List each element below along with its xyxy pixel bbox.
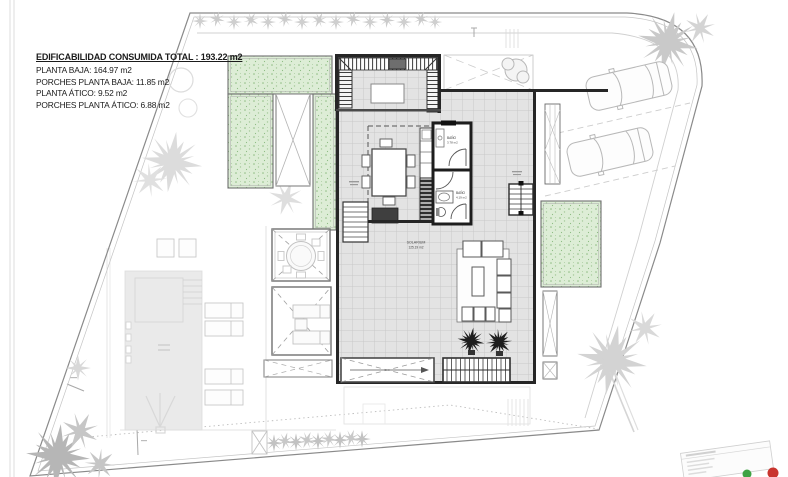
courtyard-low: [264, 360, 332, 377]
pergola-slats: [339, 58, 437, 70]
sofa-set: [457, 241, 511, 322]
legend-total: EDIFICABILIDAD CONSUMIDA TOTAL : 193.22 …: [36, 52, 242, 62]
palm-tree-icon: [226, 14, 242, 30]
wall: [335, 54, 441, 58]
planter: [543, 291, 557, 356]
palm-tree-icon: [362, 14, 378, 30]
palm-tree-icon: [65, 355, 91, 381]
palm-trunk: [610, 372, 634, 432]
entry-stair: [343, 202, 368, 242]
legend-line-planta-atico: PLANTA ÁTICO: 9.52 m2: [36, 88, 242, 100]
wall: [336, 111, 339, 384]
palm-tree-icon: [192, 13, 208, 29]
room-label: SOLARIUM: [407, 241, 426, 245]
wall: [368, 220, 433, 223]
wall: [533, 89, 536, 384]
dining-table: [372, 149, 406, 196]
coffee-table: [472, 267, 484, 296]
planter: [545, 104, 560, 184]
wall: [335, 54, 339, 111]
wall: [336, 109, 441, 112]
palm-tree-icon: [328, 14, 344, 30]
palm-tree-icon: [378, 11, 395, 28]
palm-tree-icon: [240, 9, 262, 31]
window: [441, 121, 456, 126]
bathroom-block: BAÑO 3.78 m2 BAÑO 4.19 m2: [433, 121, 471, 225]
courtyard-dining: [272, 229, 330, 281]
room-area-label: 4.19 m2: [456, 196, 467, 200]
deck-ramp: [341, 358, 434, 382]
palm-tree-icon: [343, 9, 363, 29]
room-area-label: 3.78 m2: [447, 141, 458, 145]
rooftop-unit: [389, 59, 406, 69]
wall: [438, 54, 442, 113]
room-label: BAÑO: [456, 190, 466, 195]
trellis-post: [252, 431, 267, 454]
stair-west: [339, 70, 352, 108]
palm-row-top: [192, 9, 442, 31]
palm-tree-icon: [621, 304, 670, 353]
garden-stair: [509, 181, 533, 216]
palm-tree-icon: [260, 14, 276, 30]
room-label: BAÑO: [447, 135, 457, 140]
grill-strip: [420, 178, 433, 221]
car-icon: [583, 57, 674, 116]
buildability-legend: EDIFICABILIDAD CONSUMIDA TOTAL : 193.22 …: [36, 52, 242, 111]
palm-tree-icon: [411, 9, 432, 30]
swimming-pool: [125, 271, 202, 433]
wall: [440, 89, 608, 92]
main-stair: [443, 358, 510, 382]
garden-bed: [541, 201, 601, 287]
planter: [543, 362, 557, 379]
legend-line-porches-planta-baja: PORCHES PLANTA BAJA: 11.85 m2: [36, 77, 242, 89]
car-icon: [564, 123, 655, 182]
lightwell: [276, 94, 310, 186]
garden-bed: [313, 94, 336, 230]
legend-line-planta-baja: PLANTA BAJA: 164.97 m2: [36, 65, 242, 77]
hedge-row-bottom: [265, 427, 371, 452]
legend-line-porches-planta-atico: PORCHES PLANTA ÁTICO: 6.88 m2: [36, 100, 242, 112]
floor-plan-page: BAÑO 3.78 m2 BAÑO 4.19 m2: [0, 0, 788, 477]
courtyard-lounge: [272, 287, 331, 355]
lower-level-faint: [344, 387, 530, 426]
solarium-label: SOLARIUM 125.19 m2: [407, 241, 426, 250]
pool-mark: [158, 349, 170, 351]
pool-mark: [158, 344, 170, 346]
palm-tree-icon: [294, 14, 310, 30]
garden-bed: [228, 56, 332, 94]
kitchen-counter: [420, 128, 433, 178]
palm-tree-icon: [207, 9, 227, 29]
stamp-inset: [680, 441, 773, 477]
room-area-label: 125.19 m2: [408, 246, 423, 250]
palm-tree-icon: [396, 14, 412, 30]
terrace-table: [371, 84, 404, 103]
sheet-margin-lines: [10, 0, 14, 477]
